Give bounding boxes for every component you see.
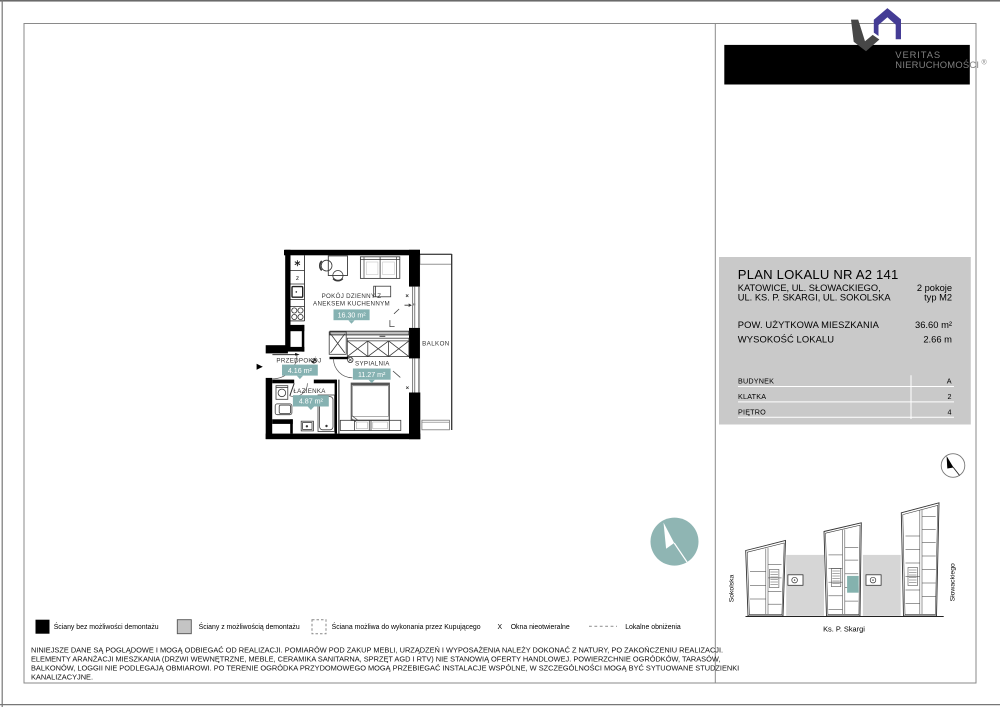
- svg-text:VERITAS: VERITAS: [895, 49, 941, 60]
- svg-text:KLATKA: KLATKA: [738, 392, 766, 401]
- svg-text:ŁAZIENKA: ŁAZIENKA: [293, 388, 326, 395]
- svg-text:Sokolska: Sokolska: [729, 574, 736, 602]
- svg-text:BUDYNEK: BUDYNEK: [738, 377, 774, 386]
- svg-text:SYPIALNIA: SYPIALNIA: [355, 361, 390, 368]
- svg-text:PLAN LOKALU NR A2 141: PLAN LOKALU NR A2 141: [738, 267, 899, 282]
- svg-text:typ M2: typ M2: [924, 293, 952, 303]
- svg-text:Lokalne obniżenia: Lokalne obniżenia: [625, 624, 681, 631]
- svg-text:X: X: [498, 624, 503, 631]
- svg-text:2.66 m: 2.66 m: [923, 334, 952, 345]
- svg-text:WYSOKOŚĆ LOKALU: WYSOKOŚĆ LOKALU: [738, 334, 834, 345]
- svg-text:NINIEJSZE DANE SĄ POGLĄDOWE I: NINIEJSZE DANE SĄ POGLĄDOWE I MOGĄ ODBIE…: [31, 645, 723, 654]
- svg-text:4: 4: [948, 407, 952, 416]
- svg-text:Ks. P. Skargi: Ks. P. Skargi: [823, 624, 865, 633]
- svg-text:PRZEDPOKÓJ: PRZEDPOKÓJ: [276, 358, 321, 365]
- svg-text:PIĘTRO: PIĘTRO: [738, 407, 766, 416]
- svg-text:Okna nieotwieralne: Okna nieotwieralne: [511, 624, 570, 631]
- svg-text:Ściany z możliwością demontażu: Ściany z możliwością demontażu: [199, 622, 300, 631]
- svg-text:ANEKSEM KUCHENNYM: ANEKSEM KUCHENNYM: [313, 300, 390, 307]
- svg-text:4.16 m²: 4.16 m²: [288, 367, 313, 375]
- svg-text:KATOWICE, UL. SŁOWACKIEGO,: KATOWICE, UL. SŁOWACKIEGO,: [738, 283, 881, 293]
- svg-text:BALKON: BALKON: [422, 341, 450, 348]
- svg-text:NIERUCHOMOŚCI: NIERUCHOMOŚCI: [895, 59, 979, 70]
- svg-text:z: z: [296, 275, 299, 282]
- svg-text:36.60 m²: 36.60 m²: [915, 319, 952, 330]
- svg-text:ELEMENTY ARANŻACJI MIESZKANIA: ELEMENTY ARANŻACJI MIESZKANIA (DRZWI WEW…: [31, 654, 720, 663]
- svg-text:KANALIZACYJNE.: KANALIZACYJNE.: [31, 672, 93, 681]
- svg-text:POKÓJ DZIENNY Z: POKÓJ DZIENNY Z: [322, 293, 382, 300]
- svg-text:®: ®: [982, 59, 988, 67]
- svg-text:Słowackiego: Słowackiego: [950, 563, 957, 601]
- svg-text:16.30 m²: 16.30 m²: [338, 312, 367, 320]
- svg-text:UL. KS. P. SKARGI, UL. SOKOLSK: UL. KS. P. SKARGI, UL. SOKOLSKA: [738, 293, 892, 303]
- svg-text:A: A: [947, 377, 952, 386]
- svg-text:11.27 m²: 11.27 m²: [358, 371, 386, 379]
- svg-text:2: 2: [948, 392, 952, 401]
- svg-text:Ściany bez możliwości demontaż: Ściany bez możliwości demontażu: [54, 622, 159, 631]
- svg-text:BALKONÓW, LOGGII NIE PODLEGAJĄ: BALKONÓW, LOGGII NIE PODLEGAJĄ OBMIAROWI…: [31, 663, 739, 672]
- svg-text:4.87 m²: 4.87 m²: [299, 398, 324, 406]
- svg-text:POW. UŻYTKOWA MIESZKANIA: POW. UŻYTKOWA MIESZKANIA: [738, 319, 880, 330]
- svg-text:Ściana możliwa do wykonania pr: Ściana możliwa do wykonania przez Kupują…: [332, 622, 481, 631]
- svg-text:2 pokoje: 2 pokoje: [917, 283, 952, 293]
